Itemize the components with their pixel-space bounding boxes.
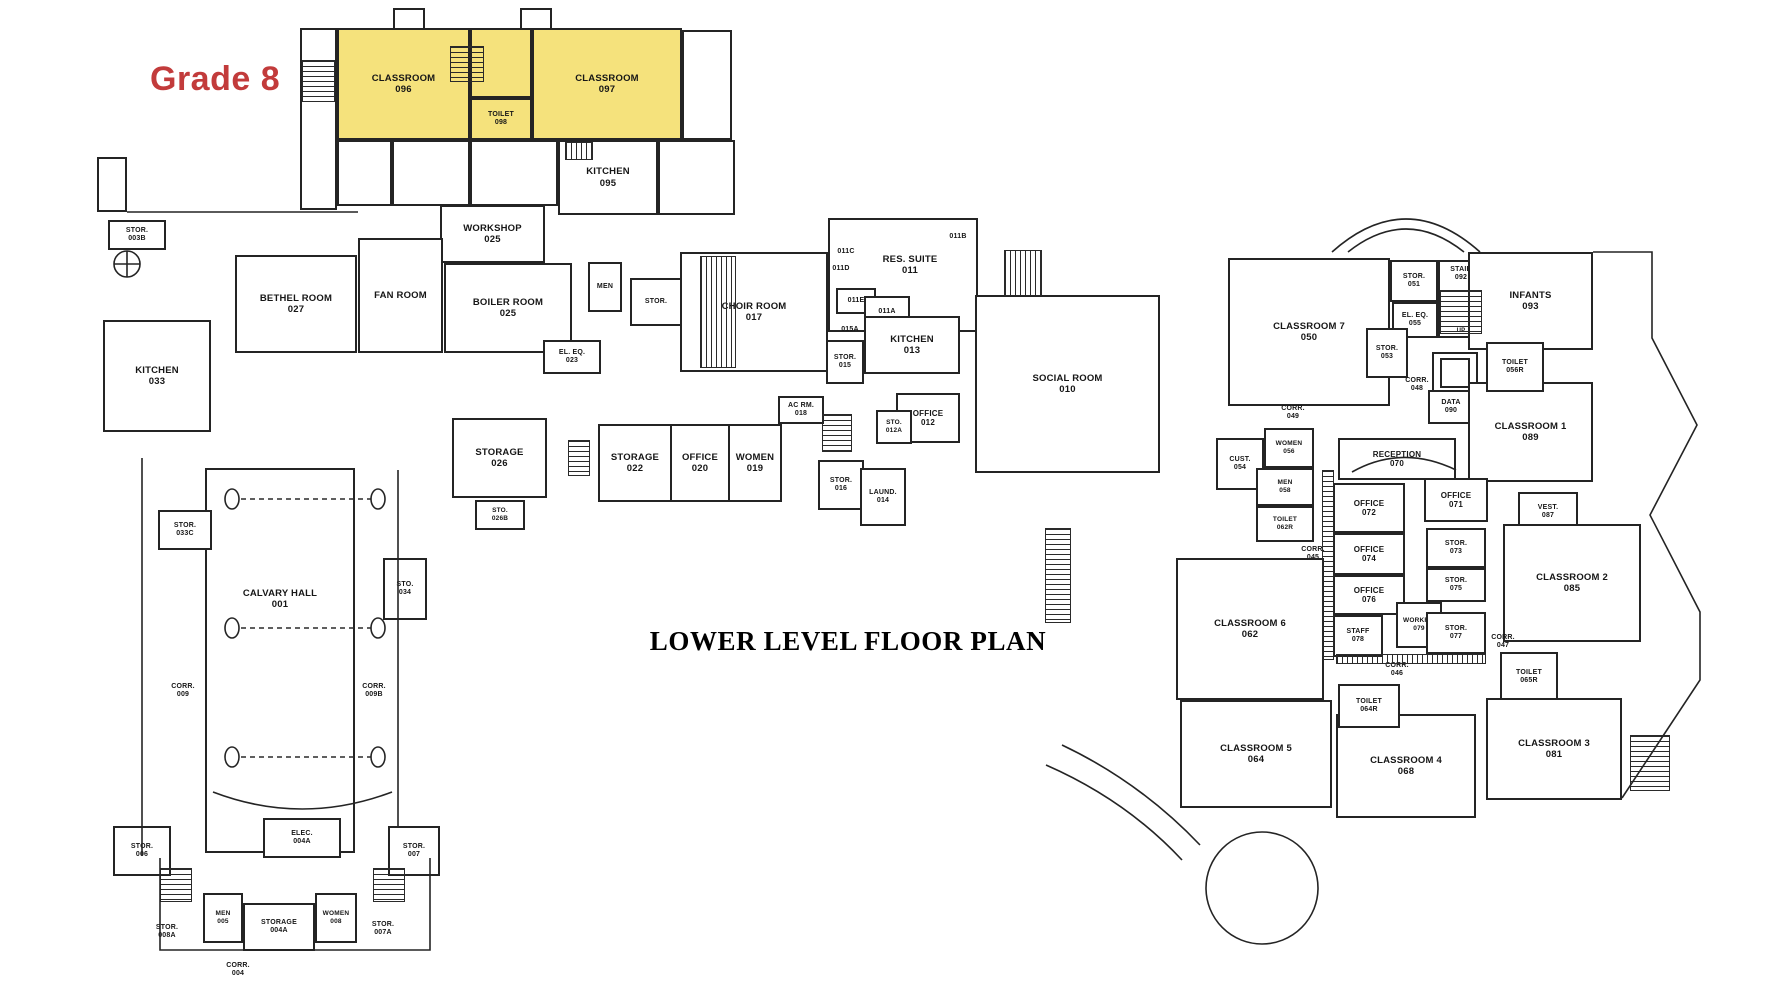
stairs-hatch — [822, 414, 852, 452]
organ-pipes — [700, 256, 736, 368]
plan-title: LOWER LEVEL FLOOR PLAN — [608, 626, 1088, 657]
stairs-hatch — [160, 868, 192, 902]
stairs-hatch — [1440, 290, 1482, 334]
grade-8-annotation: Grade 8 — [150, 60, 280, 99]
stairs-hatch — [373, 868, 405, 902]
movable-wall-hatch — [1322, 470, 1334, 660]
stairs-hatch — [450, 46, 484, 82]
stairs-hatch — [565, 142, 593, 160]
stairs-hatch — [568, 440, 590, 476]
walls-decor — [0, 0, 1780, 995]
stairs-hatch — [1630, 735, 1670, 791]
stairs-hatch — [302, 60, 335, 102]
overlay-layer — [0, 0, 1780, 995]
stairs-hatch — [1004, 250, 1042, 296]
floor-plan: CLASSROOM096TOILET098CLASSROOM097KITCHEN… — [0, 0, 1780, 995]
corridor-hatch — [1336, 654, 1486, 664]
garden-steps — [1045, 528, 1071, 623]
